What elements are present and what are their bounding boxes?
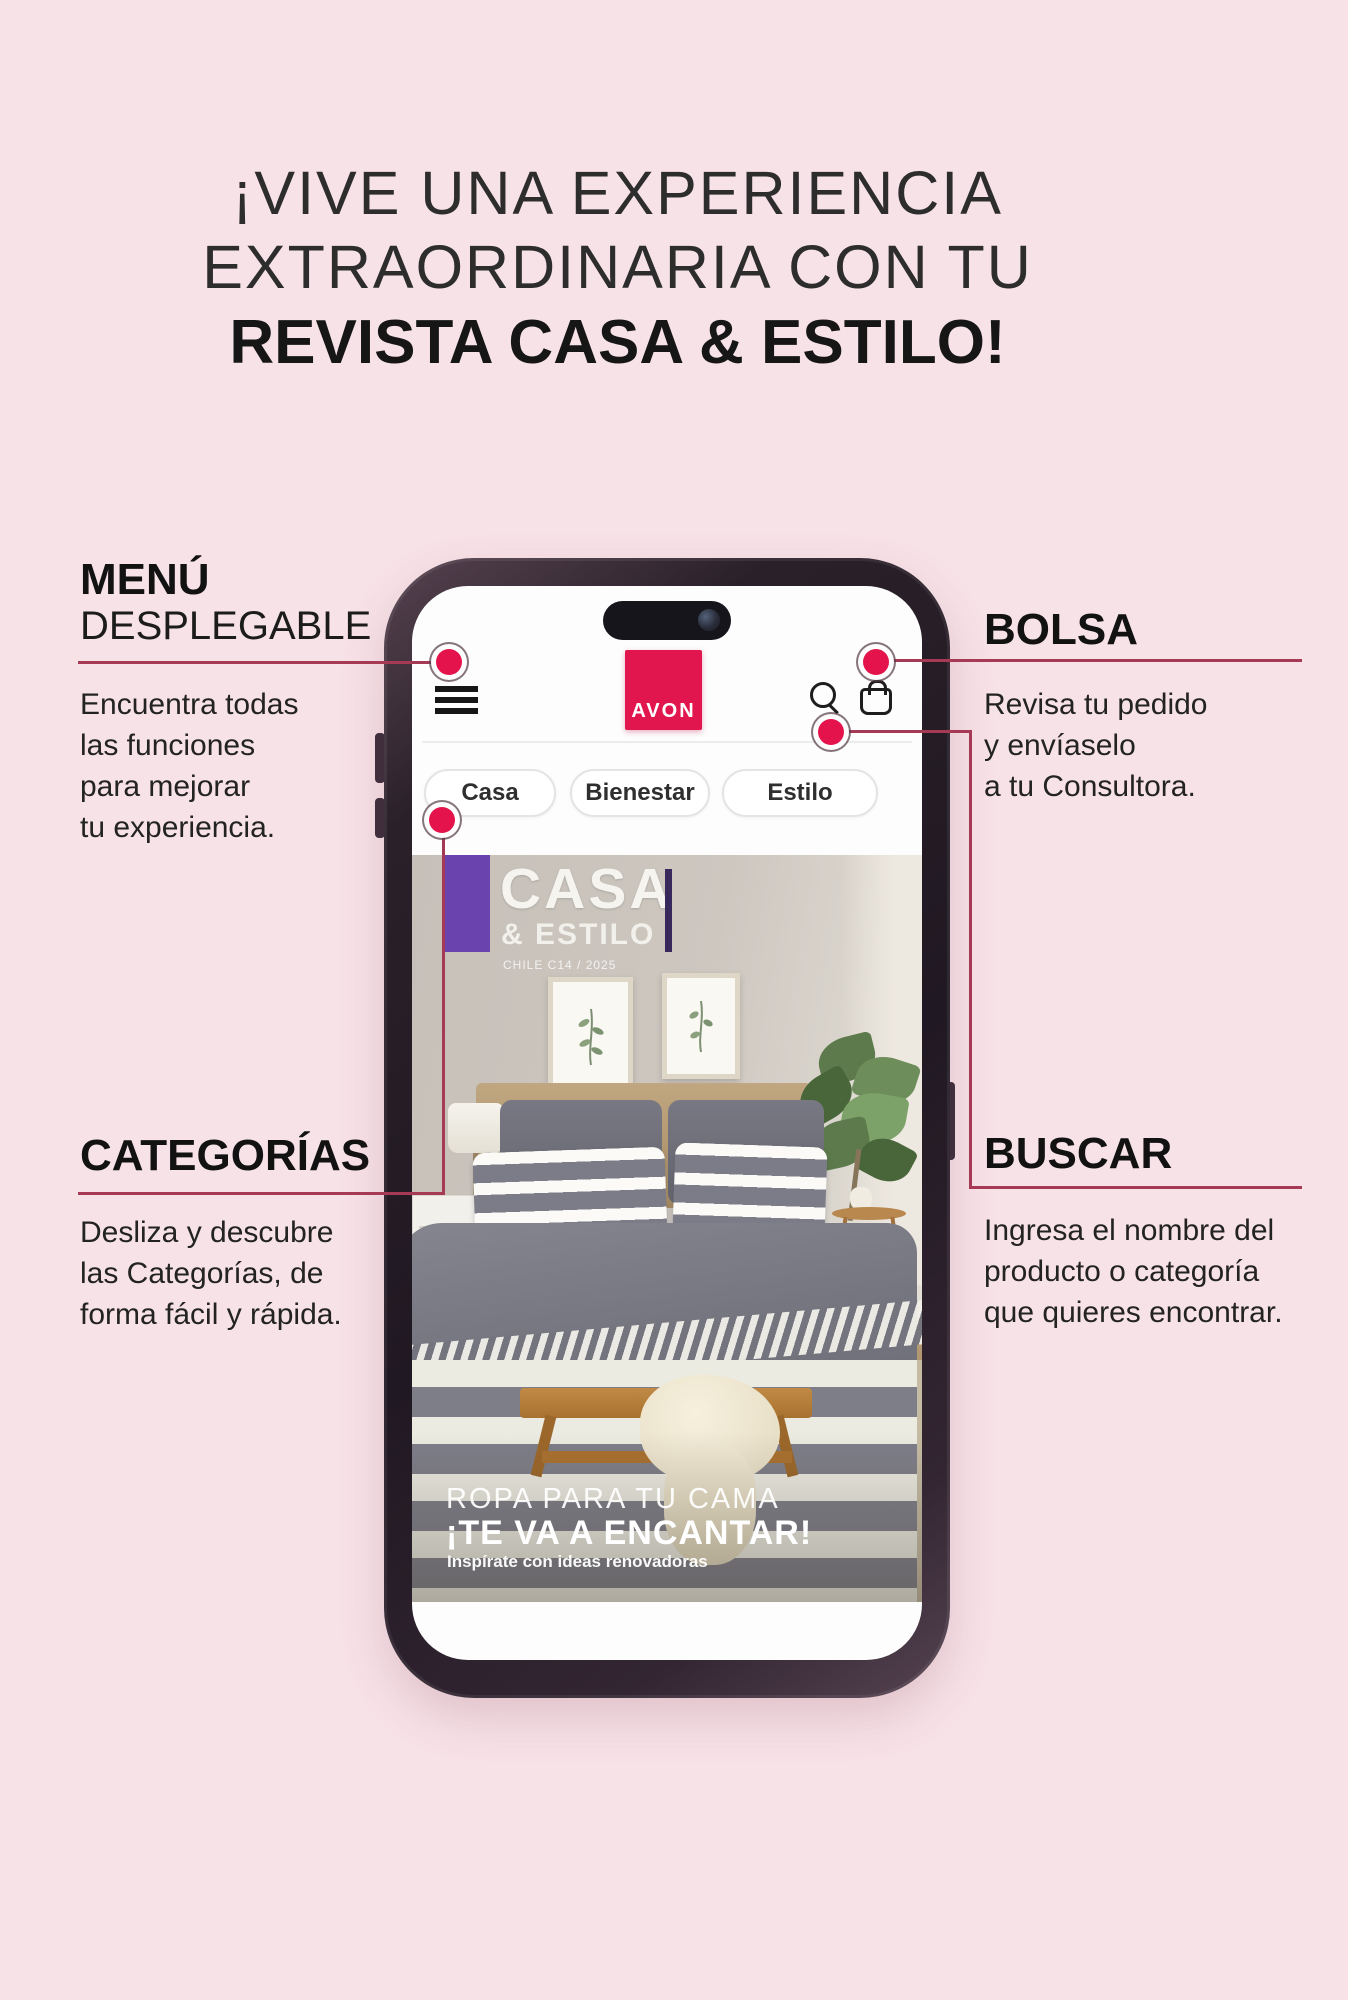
menu-connector-line <box>78 661 440 664</box>
page-title-line2: EXTRAORDINARIA CON TU <box>115 230 1120 304</box>
page-title: ¡VIVE UNA EXPERIENCIA EXTRAORDINARIA CON… <box>115 156 1120 382</box>
search-icon[interactable] <box>808 680 844 716</box>
page-title-line1: ¡VIVE UNA EXPERIENCIA <box>115 156 1120 230</box>
avon-logo[interactable]: AVON <box>625 650 702 730</box>
cover-caption-line2: ¡TE VA A ENCANTAR! <box>446 1514 812 1553</box>
hamburger-menu-icon[interactable] <box>435 686 478 692</box>
tab-bienestar-label: Bienestar <box>585 779 694 807</box>
notch <box>603 601 731 640</box>
botanical-print-icon <box>662 973 740 1079</box>
cover-caption-line3: Inspírate con ideas renovadoras <box>447 1552 708 1572</box>
avon-logo-text: AVON <box>631 700 695 723</box>
cover-edition: CHILE C14 / 2025 <box>503 958 616 972</box>
buscar-underline <box>969 1186 1302 1189</box>
cover-title: CASA <box>500 861 674 918</box>
buscar-callout-title: BUSCAR <box>984 1132 1172 1176</box>
catalog-cover[interactable]: CASA & ESTILO CHILE C14 / 2025 ROPA PARA… <box>412 855 922 1602</box>
tab-estilo[interactable]: Estilo <box>722 769 878 817</box>
categorias-underline <box>78 1192 445 1195</box>
cover-flag <box>443 855 490 952</box>
tab-estilo-label: Estilo <box>767 779 832 807</box>
categorias-marker-dot <box>429 807 455 833</box>
menu-marker-dot <box>436 649 462 675</box>
cover-caption-line1: ROPA PARA TU CAMA <box>446 1483 780 1516</box>
buscar-callout-body: Ingresa el nombre del producto o categor… <box>984 1210 1283 1333</box>
shopping-bag-icon[interactable] <box>860 688 892 715</box>
search-handle <box>828 704 839 715</box>
buscar-connector-line-h <box>840 730 972 733</box>
menu-callout-title: MENÚ <box>80 558 210 602</box>
page-title-line3: REVISTA CASA & ESTILO! <box>115 304 1120 382</box>
tab-casa-label: Casa <box>461 779 518 807</box>
menu-callout-body: Encuentra todas las funciones para mejor… <box>80 684 298 848</box>
categorias-connector-line-v <box>442 820 445 1195</box>
buscar-connector-line-v <box>969 730 972 1189</box>
tab-bienestar[interactable]: Bienestar <box>570 769 710 817</box>
cover-subtitle: & ESTILO <box>501 918 655 952</box>
categorias-callout-title: CATEGORÍAS <box>80 1134 370 1178</box>
search-lens <box>810 682 836 708</box>
bolsa-callout-body: Revisa tu pedido y envíaselo a tu Consul… <box>984 684 1207 807</box>
bolsa-callout-title: BOLSA <box>984 608 1138 652</box>
buscar-marker-dot <box>818 719 844 745</box>
botanical-print-icon <box>548 977 633 1095</box>
camera-icon <box>698 609 720 631</box>
menu-callout-subtitle: DESPLEGABLE <box>80 606 371 646</box>
lamp <box>448 1103 504 1153</box>
categorias-callout-body: Desliza y descubre las Categorías, de fo… <box>80 1212 342 1335</box>
promo-page: ¡VIVE UNA EXPERIENCIA EXTRAORDINARIA CON… <box>0 0 1348 2000</box>
bolsa-marker-dot <box>863 649 889 675</box>
phone-screen: AVON Casa Bienestar Estilo <box>412 586 922 1660</box>
bolsa-connector-line <box>884 659 1302 662</box>
cover-title-divider <box>665 869 672 952</box>
